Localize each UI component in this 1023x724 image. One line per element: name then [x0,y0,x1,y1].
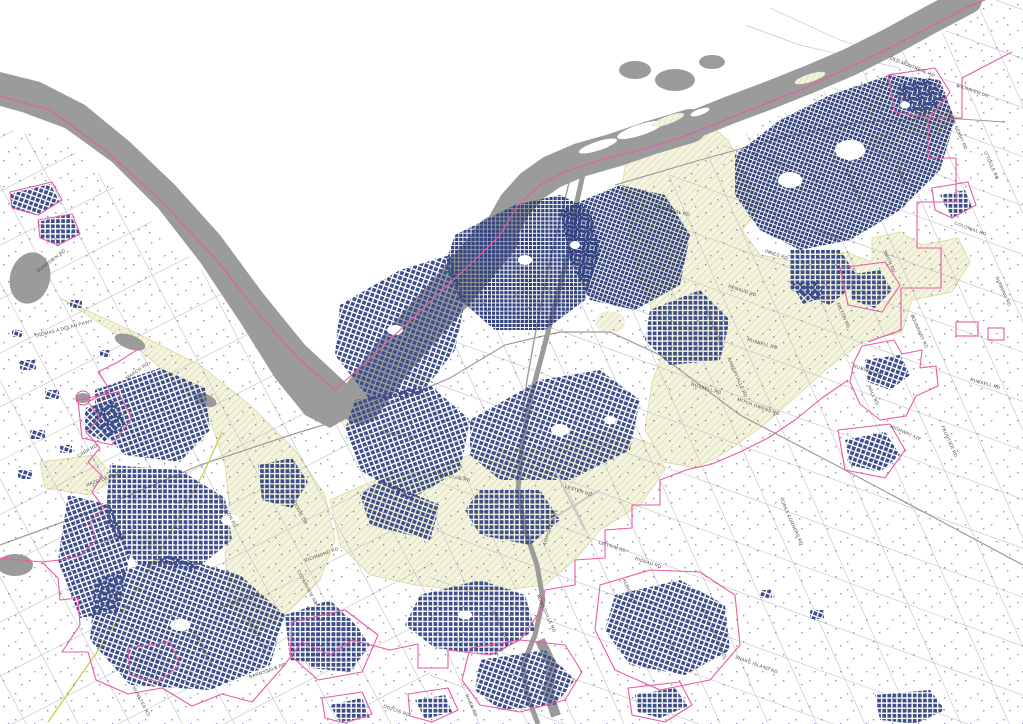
open-space-gap [900,102,910,109]
quebec-landform [619,61,651,79]
open-space-gap [551,424,569,436]
building-cluster [45,390,59,399]
open-space-gap [458,611,472,620]
open-space-gap [835,140,865,160]
ottawa-map-canvas[interactable]: RUSSELL RDRUSSELL RDRUSSELL RDRUSSELL RD… [0,0,1023,724]
building-cluster [30,430,45,439]
building-cluster [60,445,72,453]
building-cluster [20,360,36,370]
map-page: RUSSELL RDRUSSELL RDRUSSELL RDRUSSELL RD… [0,0,1023,724]
building-cluster [810,610,824,619]
open-space-gap [570,241,580,249]
building-cluster [70,300,82,308]
open-space-gap [778,172,802,188]
open-space-gap [518,255,532,265]
building-cluster [18,470,32,479]
building-cluster [100,350,110,357]
building-cluster [12,330,22,337]
open-space-gap [604,416,616,425]
building-cluster [760,590,772,598]
quebec-landform [699,55,725,69]
quebec-landform [655,69,695,91]
open-space-gap [170,619,190,631]
